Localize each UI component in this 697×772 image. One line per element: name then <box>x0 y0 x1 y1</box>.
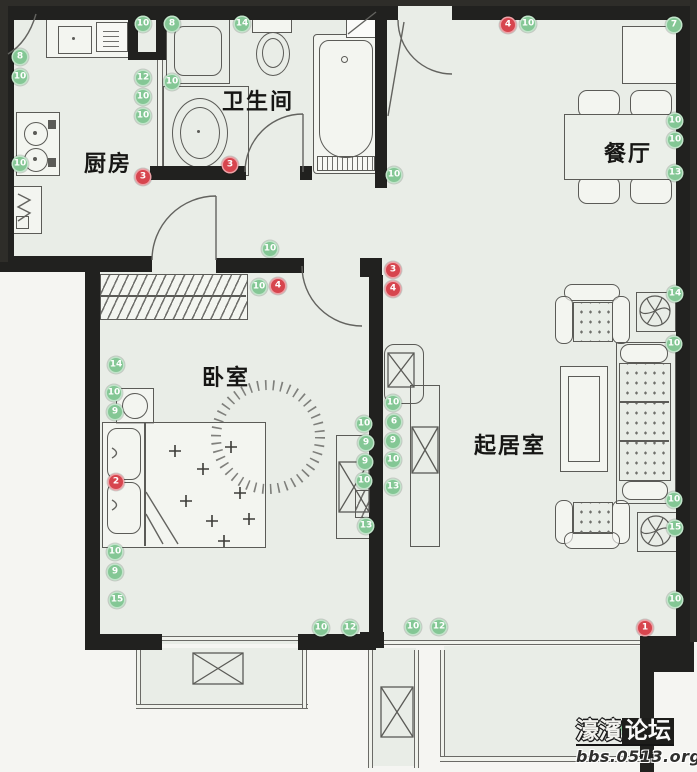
marker-green-13: 13 <box>358 518 375 535</box>
marker-green-10: 10 <box>520 16 537 33</box>
marker-green-15: 15 <box>109 592 126 609</box>
marker-green-10: 10 <box>107 544 124 561</box>
marker-green-6: 6 <box>386 414 403 431</box>
marker-green-10: 10 <box>313 620 330 637</box>
marker-green-10: 10 <box>262 241 279 258</box>
marker-green-10: 10 <box>135 89 152 106</box>
marker-green-14: 14 <box>234 16 251 33</box>
marker-green-9: 9 <box>107 564 124 581</box>
marker-red-3: 3 <box>135 169 152 186</box>
marker-red-4: 4 <box>500 17 517 34</box>
marker-green-8: 8 <box>12 49 29 66</box>
marker-green-10: 10 <box>666 336 683 353</box>
watermark: 濠濱论坛 bbs.0513.org <box>576 718 697 766</box>
marker-red-4: 4 <box>385 281 402 298</box>
marker-green-12: 12 <box>431 619 448 636</box>
marker-green-10: 10 <box>667 132 684 149</box>
marker-green-10: 10 <box>385 395 402 412</box>
marker-red-4: 4 <box>270 278 287 295</box>
marker-green-10: 10 <box>356 473 373 490</box>
marker-green-10: 10 <box>135 108 152 125</box>
marker-green-13: 13 <box>667 165 684 182</box>
marker-green-10: 10 <box>12 156 29 173</box>
watermark-url: bbs.0513.org <box>576 747 697 766</box>
marker-green-10: 10 <box>667 592 684 609</box>
marker-red-3: 3 <box>385 262 402 279</box>
marker-green-12: 12 <box>342 620 359 637</box>
marker-red-1: 1 <box>637 620 654 637</box>
marker-green-12: 12 <box>135 70 152 87</box>
marker-green-10: 10 <box>164 74 181 91</box>
marker-green-10: 10 <box>667 113 684 130</box>
watermark-name-outline: 濠濱 <box>576 718 622 746</box>
marker-green-14: 14 <box>667 286 684 303</box>
marker-green-10: 10 <box>385 452 402 469</box>
watermark-site-name: 濠濱论坛 <box>576 718 697 745</box>
marker-green-14: 14 <box>108 357 125 374</box>
marker-green-10: 10 <box>386 167 403 184</box>
marker-green-13: 13 <box>385 479 402 496</box>
marker-green-15: 15 <box>667 520 684 537</box>
marker-red-3: 3 <box>222 157 239 174</box>
marker-green-7: 7 <box>666 17 683 34</box>
marker-green-10: 10 <box>251 279 268 296</box>
marker-green-9: 9 <box>385 433 402 450</box>
marker-green-10: 10 <box>356 416 373 433</box>
marker-red-2: 2 <box>108 474 125 491</box>
marker-green-10: 10 <box>106 385 123 402</box>
marker-green-10: 10 <box>405 619 422 636</box>
marker-green-10: 10 <box>135 16 152 33</box>
marker-green-9: 9 <box>107 404 124 421</box>
marker-green-9: 9 <box>358 435 375 452</box>
floor-plan: 厨房 卫生间 餐厅 卧室 起居室 81010108144107121010103… <box>0 0 697 772</box>
marker-green-10: 10 <box>666 492 683 509</box>
marker-green-8: 8 <box>164 16 181 33</box>
marker-green-9: 9 <box>357 454 374 471</box>
marker-layer: 8101010814410712101010331010101310104341… <box>0 0 697 772</box>
watermark-name-box: 论坛 <box>622 718 674 746</box>
marker-green-10: 10 <box>12 69 29 86</box>
